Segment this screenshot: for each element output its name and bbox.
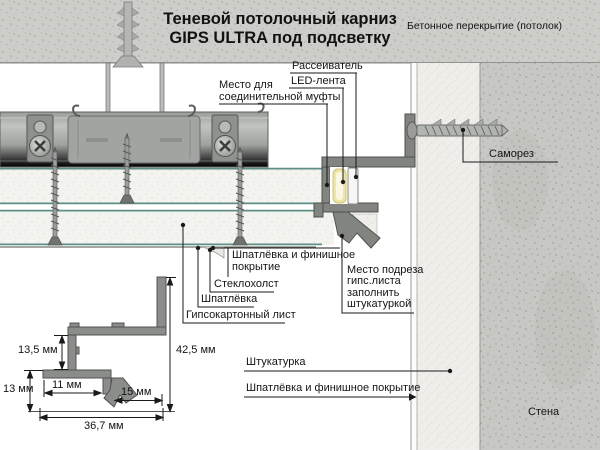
title-line-2: GIPS ULTRA под подсветку <box>120 29 440 48</box>
dimension-13mm: 13 мм <box>3 383 33 395</box>
dimension-42-5mm: 42,5 мм <box>176 344 216 356</box>
label-diffuser: Рассеиватель <box>292 61 363 73</box>
label-plaster: Штукатурка <box>246 357 306 369</box>
label-screw: Саморез <box>489 149 534 161</box>
profile-bracket-left <box>27 115 53 162</box>
furring-profile <box>0 103 268 167</box>
label-coupling-place: Место для соединительной муфты <box>219 80 340 103</box>
title-line-1: Теневой потолочный карниз <box>120 10 440 29</box>
label-concrete-slab: Бетонное перекрытие (потолок) <box>407 21 562 33</box>
wall-concrete <box>480 63 600 450</box>
label-cut-area: Место подреза гипс.листа заполнить штука… <box>347 265 423 310</box>
label-fiberglass: Стеклохолст <box>214 279 279 291</box>
plaster-layer <box>417 63 480 450</box>
dimension-13-5mm: 13,5 мм <box>18 344 58 356</box>
label-putty-finish-bottom: Шпатлёвка и финишное покрытие <box>246 383 420 395</box>
dimension-11mm: 11 мм <box>52 379 82 391</box>
label-putty-finish-top: Шпатлёвка и финишное покрытие <box>232 250 355 273</box>
construction-detail-diagram: Теневой потолочный карниз GIPS ULTRA под… <box>0 0 600 450</box>
label-wall: Стена <box>528 407 559 419</box>
diagram-title: Теневой потолочный карниз GIPS ULTRA под… <box>120 10 440 48</box>
label-putty: Шпатлёвка <box>201 294 257 306</box>
profile-bracket-right <box>212 115 238 162</box>
dimension-36-7mm: 36,7 мм <box>84 420 124 432</box>
label-drywall-sheet: Гипсокартонный лист <box>186 310 296 322</box>
dimension-15mm: 15 мм <box>121 386 151 398</box>
